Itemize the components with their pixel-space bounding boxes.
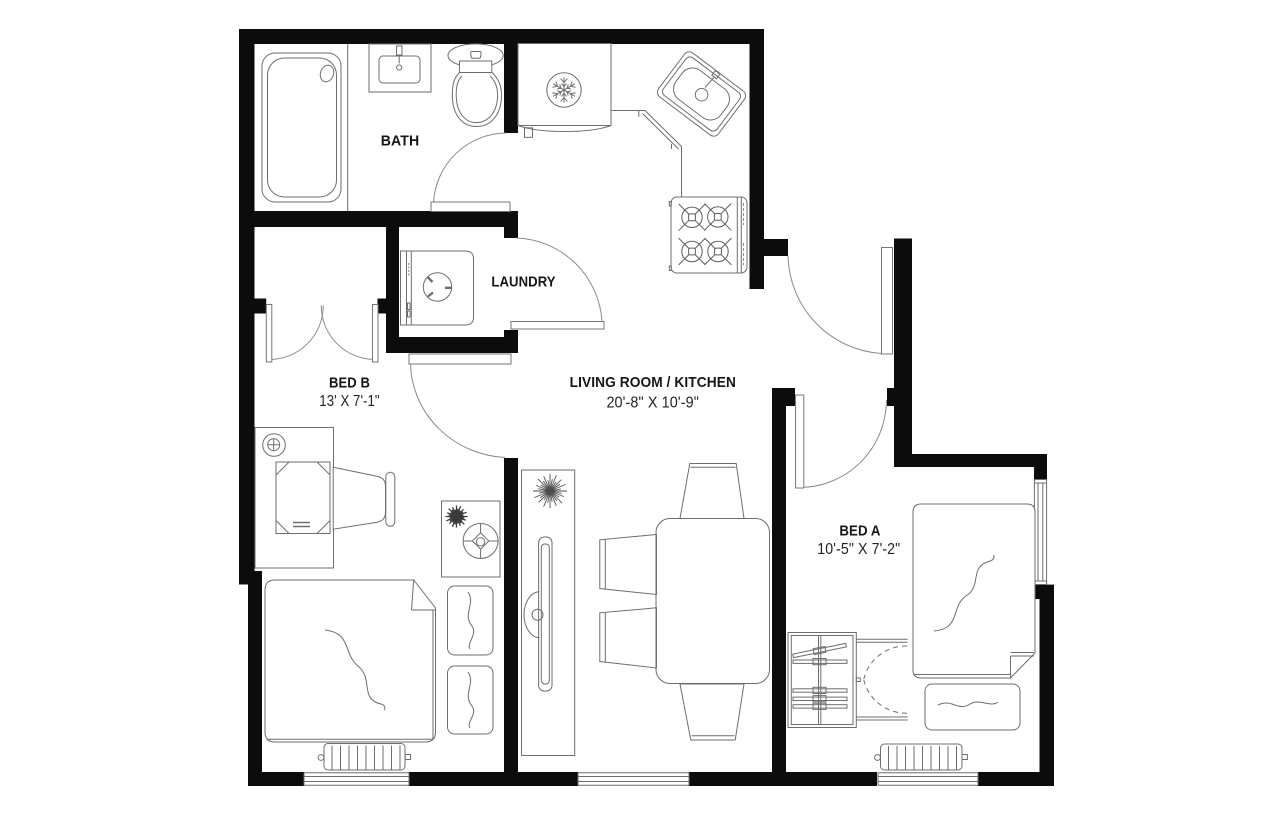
svg-text:BED B: BED B	[329, 376, 370, 392]
svg-text:20'-8" X 10'-9": 20'-8" X 10'-9"	[606, 394, 699, 411]
svg-text:BED A: BED A	[839, 523, 881, 539]
svg-text:13' X 7'-1": 13' X 7'-1"	[319, 393, 379, 410]
svg-text:LIVING ROOM / KITCHEN: LIVING ROOM / KITCHEN	[570, 375, 736, 391]
svg-text:10'-5" X 7'-2": 10'-5" X 7'-2"	[817, 541, 900, 558]
svg-text:LAUNDRY: LAUNDRY	[491, 275, 555, 291]
svg-text:BATH: BATH	[381, 133, 420, 149]
